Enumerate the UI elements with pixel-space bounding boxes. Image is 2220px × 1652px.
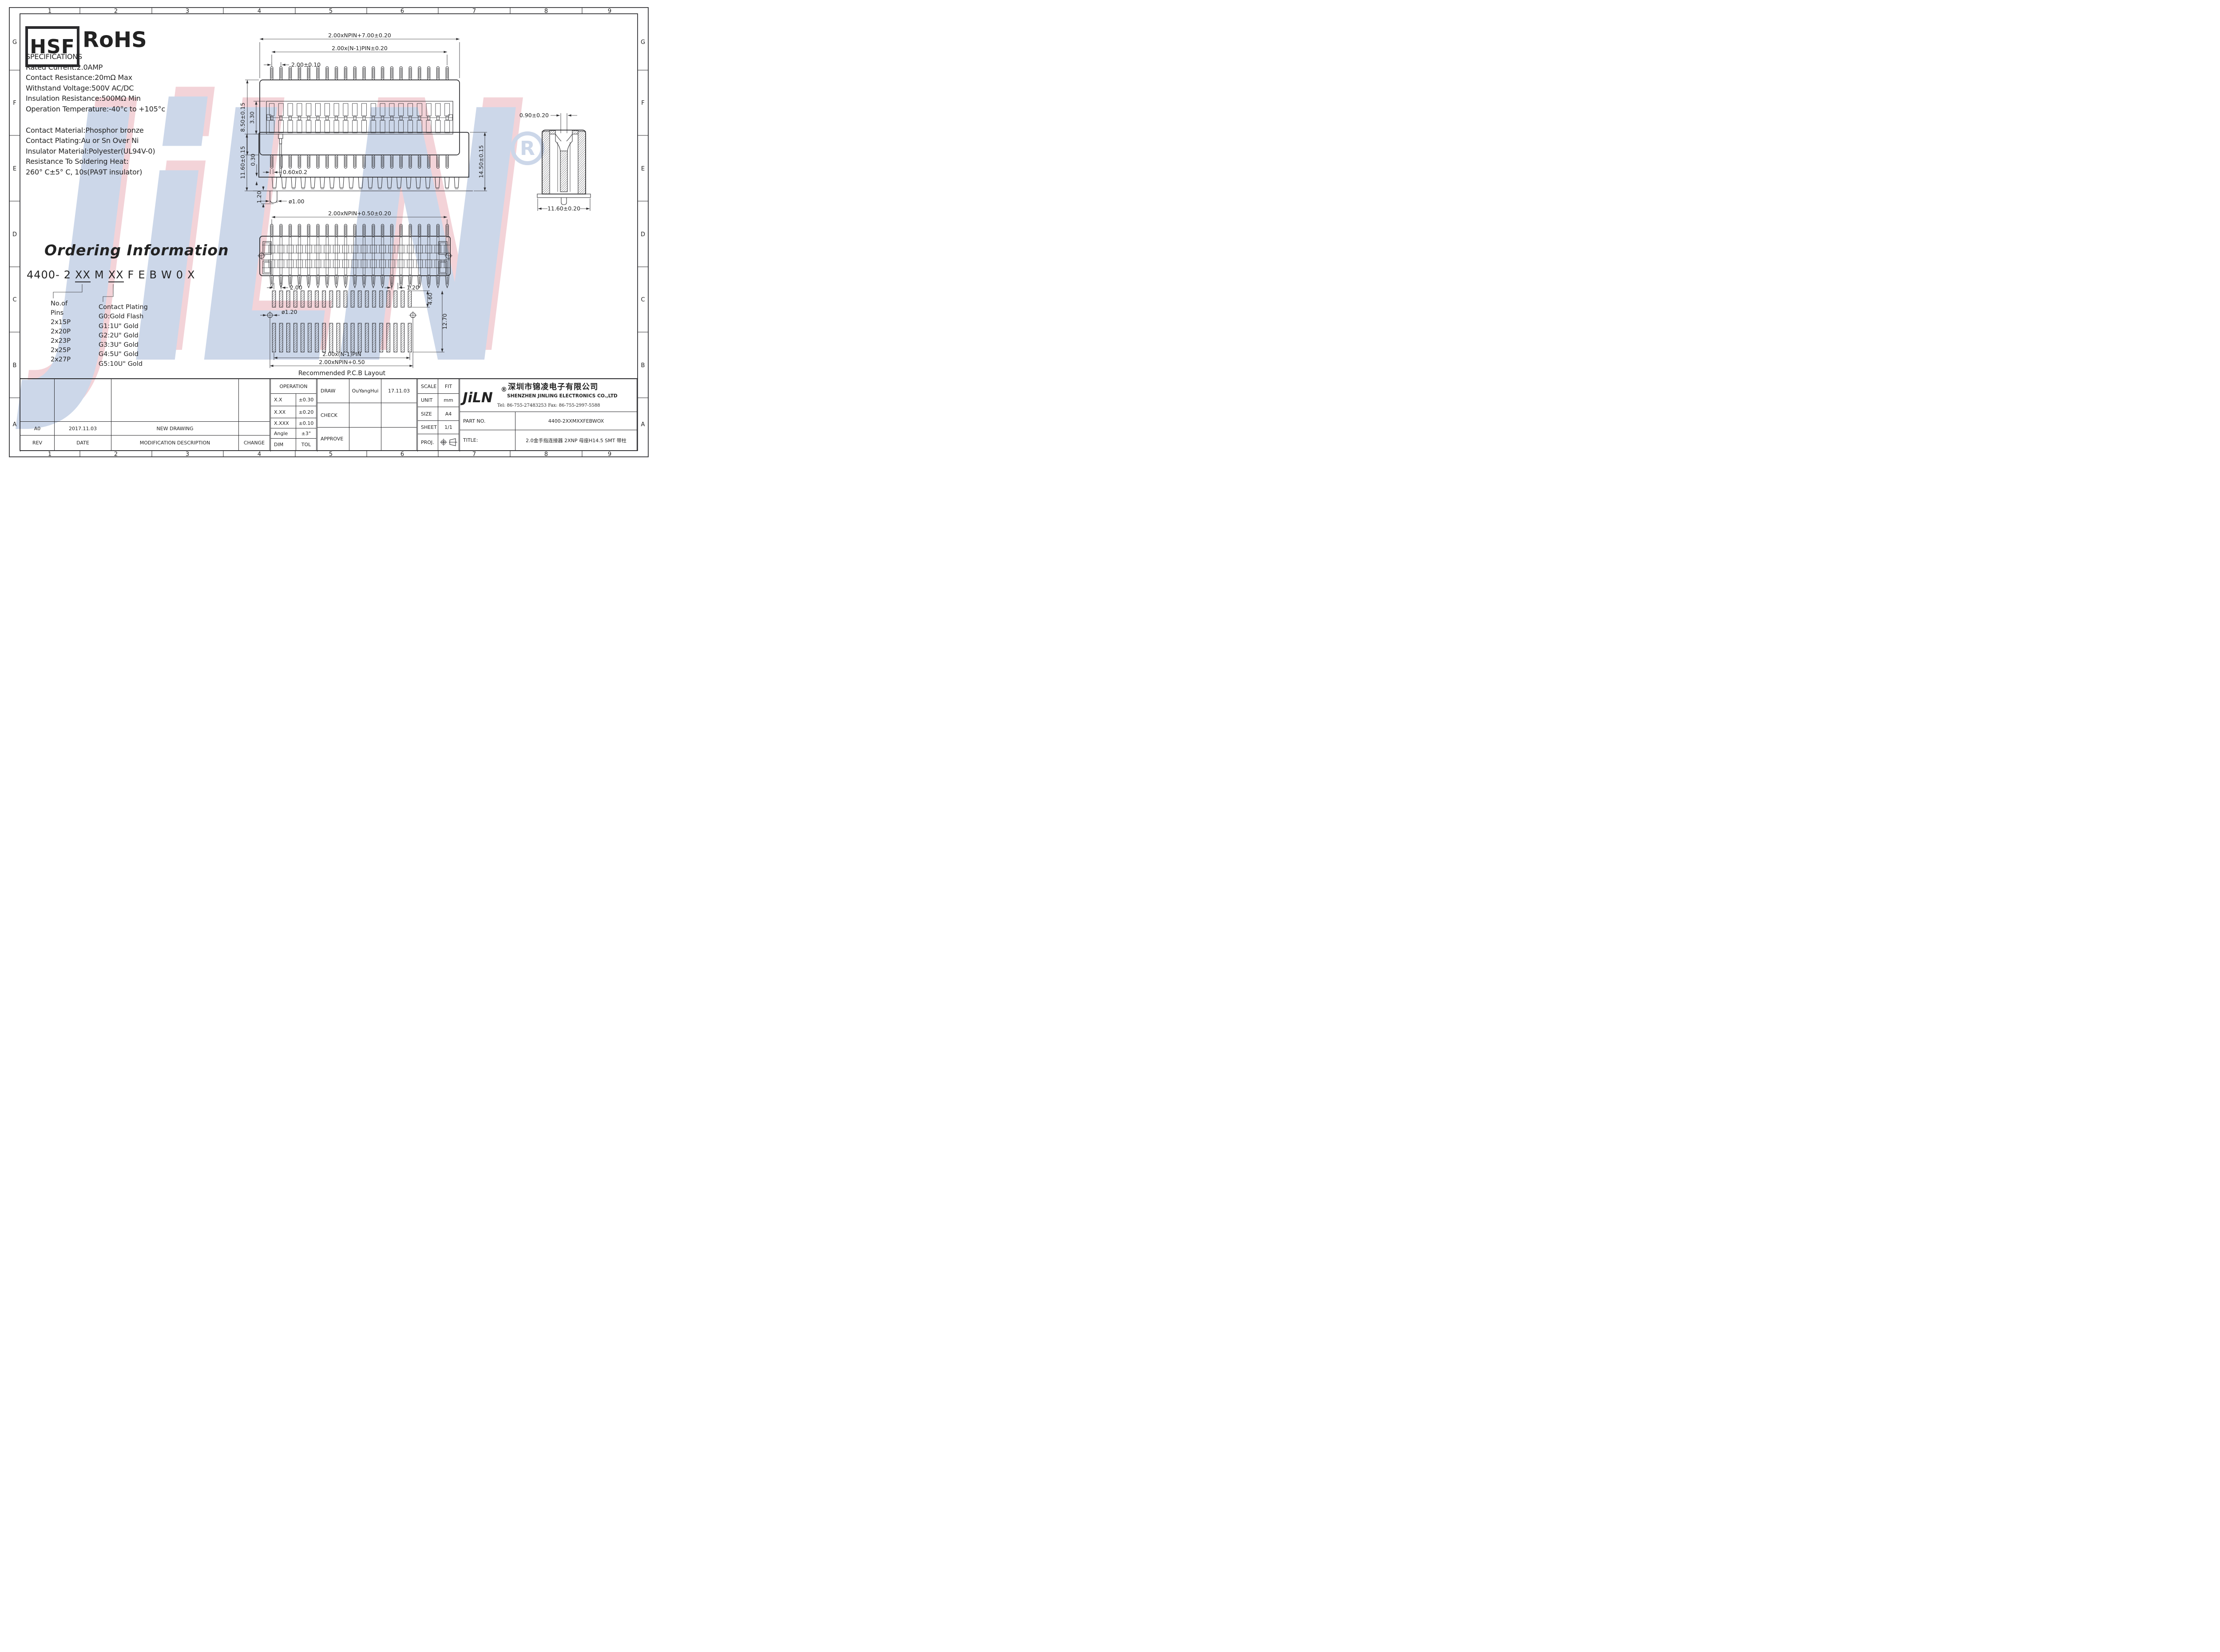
dim-top-pinwidth: 0.60x0.2 [283,169,307,175]
code-seg: 4400- [27,269,60,282]
rev-empty [239,379,270,422]
code-seg: 0 [176,269,183,282]
col-label: 6 [400,451,404,458]
spec-line: Operation Temperature:-40°c to +105°c [26,104,165,115]
row-label: F [641,100,644,107]
plating-option: G3:3U" Gold [99,341,148,350]
proj-label: PROJ. [418,434,438,451]
col-label: 7 [472,8,476,15]
dim-pcb-pitch: 2.00 [290,284,302,291]
tol-val: TOL [296,439,317,451]
col-label: 4 [258,8,261,15]
plating-option: G5:10U" Gold [99,360,148,369]
part-no-value: 4400-2XXMXXFEBWOX [515,412,637,430]
col-label: 6 [400,8,404,15]
rev-desc: NEW DRAWING [111,422,239,436]
dim-side-height: 11.60±0.15 [239,146,246,179]
col-label: 5 [329,8,333,15]
ordering-part-code: 4400- 2 XX M XX F E B W 0 X [27,269,195,282]
plating-option: G1:1U" Gold [99,322,148,331]
dim-top-slotband: 3.30 [249,111,255,124]
tolerance-header: OPERATION [271,379,317,394]
rev-date: 2017.11.03 [55,422,111,436]
registered-icon: ® [501,386,507,393]
col-label: 5 [329,451,333,458]
rev-header: CHANGE [239,436,270,451]
scale-label: SCALE [418,379,438,394]
tolerance-table: OPERATION X.X ±0.30 X.XX ±0.20 X.XXX ±0.… [270,378,317,452]
dim-pcb-holedia: ø1.20 [281,309,297,315]
dim-pcb-padlen: 4.60 [427,293,433,305]
tol-dim: X.XX [271,406,296,418]
row-label: A [641,421,645,428]
row-label: A [13,421,17,428]
tol-dim: X.XXX [271,418,296,428]
company-name-en: SHENZHEN JINLING ELECTRONICS CO.,LTD [507,393,618,399]
col-label: 3 [186,8,189,15]
spec-line: Insulation Resistance:500MΩ Min [26,93,165,104]
spec-line: Contact Material:Phosphor bronze [26,125,165,136]
dim-top-pitch: 2.00±0.10 [291,61,321,68]
plating-option: G0:Gold Flash [99,312,148,321]
spec-line: Contact Plating:Au or Sn Over Ni [26,135,165,146]
tol-dim: Angle [271,428,296,439]
row-label: E [13,166,16,172]
row-label: B [641,362,645,369]
tol-dim: X.X [271,394,296,406]
company-contact: Tel: 86-755-27483253 Fax: 86-755-2997-55… [497,403,600,408]
dim-pcb-padwidth: 1.20 [407,284,419,291]
title-label: TITLE: [460,430,515,451]
dim-side-postdia: ø1.00 [289,198,305,205]
col-label: 9 [608,8,611,15]
spec-line: Resistance To Soldering Heat: [26,156,165,167]
row-label: F [13,100,16,107]
col-label: 2 [114,8,118,15]
specifications-block: SPECIFICATIONS Rated Current:2.0AMP Cont… [26,52,165,178]
dim-pcb-overall: 2.00xNPIN+0.50 [319,359,365,365]
drawing-sheet: JiLN JiLN R 1 2 [0,0,657,465]
rev-header: DATE [55,436,111,451]
dim-top-height: 8.50±0.15 [239,103,246,132]
spec-line: Withstand Voltage:500V AC/DC [26,83,165,94]
col-label: 7 [472,451,476,458]
approve-name [349,428,381,451]
col-label: 3 [186,451,189,458]
row-label: E [641,166,645,172]
spec-line: Rated Current:2.0AMP [26,62,165,73]
col-label: 9 [608,451,611,458]
approve-label: APPROVE [317,428,349,451]
scale-value: FIT [438,379,459,394]
top-view: 2.00xNPIN+7.00±0.20 2.00x(N-1)PIN±0.20 2… [239,32,460,175]
check-label: CHECK [317,403,349,428]
company-name-cn: 深圳市锦凌电子有限公司 [508,381,599,392]
pcb-layout: 2.00 1.20 4.60 12.70 ø1.20 2.00x(N-1)PIN [260,283,448,377]
rev-header: REV [20,436,55,451]
rohs-badge: RoHS [83,28,147,52]
tol-val: ±0.20 [296,406,317,418]
title-value: 2.0金手指连接器 2XNP 母座H14.5 SMT 带柱 [515,430,637,451]
dim-side-postlen: 1.20 [256,191,262,203]
pcb-caption: Recommended P.C.B Layout [298,370,386,377]
company-header: JiLN ® 深圳市锦凌电子有限公司 SHENZHEN JINLING ELEC… [460,379,637,412]
ordering-title: Ordering Information [44,242,229,259]
plating-option: G2:2U" Gold [99,331,148,341]
pin-option: No.of [51,299,71,309]
plating-options: Contact Plating G0:Gold Flash G1:1U" Gol… [99,303,148,369]
rohs-label: RoHS [83,28,147,52]
spec-line: Contact Resistance:20mΩ Max [26,72,165,83]
spec-line: 260° C±5° C, 10s(PA9T insulator) [26,167,165,178]
rev-empty [111,379,239,422]
pin-option: 2x23P [51,337,71,346]
pin-option: Pins [51,309,71,318]
row-label: D [12,231,17,238]
code-seg: B [150,269,157,282]
revision-table: A0 2017.11.03 NEW DRAWING REV DATE MODIF… [20,378,271,452]
tol-val: ±0.10 [296,418,317,428]
unit-label: UNIT [418,394,438,407]
spec-line: Insulator Material:Polyester(UL94V-0) [26,146,165,157]
row-label: C [12,297,16,303]
row-label: G [12,39,17,46]
code-seg: 2 [64,269,71,282]
size-label: SIZE [418,407,438,421]
row-label: C [641,297,645,303]
row-label: G [641,39,645,46]
third-angle-icon [439,437,458,447]
tol-val: ±3° [296,428,317,439]
part-no-label: PART NO. [460,412,515,430]
plating-option: G4:5U" Gold [99,350,148,359]
col-label: 4 [258,451,261,458]
rev-change [239,422,270,436]
code-seg: M [95,269,104,282]
row-label: B [13,362,17,369]
title-block: JiLN ® 深圳市锦凌电子有限公司 SHENZHEN JINLING ELEC… [460,378,638,452]
rev-empty [55,379,111,422]
rev-empty [20,379,55,422]
front-view: 2.00xNPIN+0.50±0.20 [258,210,452,288]
row-label: D [641,231,645,238]
pin-option: 2x15P [51,318,71,327]
code-seg: E [138,269,145,282]
plating-option: Contact Plating [99,303,148,312]
code-seg-plating: XX [108,269,124,282]
dim-pcb-span: 2.00x(N-1)PIN [322,351,361,357]
draw-name: OuYangHui [349,379,381,403]
code-seg: X [187,269,195,282]
dim-detail-width: 11.60±0.20 [547,205,580,212]
company-logo: JiLN [463,390,493,406]
pin-option: 2x27P [51,355,71,364]
col-label: 1 [48,8,52,15]
code-seg-pins: XX [75,269,91,282]
dim-detail-gap: 0.90±0.20 [519,112,549,119]
tol-val: ±0.30 [296,394,317,406]
specs-title: SPECIFICATIONS [26,52,165,62]
approve-date [381,428,417,451]
dim-front-overall: 2.00xNPIN+0.50±0.20 [328,210,391,217]
dim-pcb-rowspan: 12.70 [441,313,448,329]
sheet-value: 1/1 [438,421,459,434]
dim-top-overall: 2.00xNPIN+7.00±0.20 [328,32,391,39]
code-seg: W [161,269,172,282]
tol-dim: DIM [271,439,296,451]
check-date [381,403,417,428]
side-view: 11.60±0.15 0.30 1.20 ø1.00 14.50±0.15 [239,132,487,208]
dim-top-span: 2.00x(N-1)PIN±0.20 [332,45,388,52]
dim-side-totalheight: 14.50±0.15 [478,145,484,178]
col-label: 8 [544,8,548,15]
pin-option: 2x20P [51,327,71,337]
sheet-label: SHEET [418,421,438,434]
info-table: SCALE FIT UNIT mm SIZE A4 SHEET 1/1 PROJ… [417,378,460,452]
detail-section-view: 0.90±0.20 11.60±0.20 [519,112,591,212]
rev-id: A0 [20,422,55,436]
pin-count-options: No.of Pins 2x15P 2x20P 2x23P 2x25P 2x27P [51,299,71,364]
pin-option: 2x25P [51,346,71,355]
col-label: 8 [544,451,548,458]
draw-label: DRAW [317,379,349,403]
code-seg: F [128,269,135,282]
col-label: 2 [114,451,118,458]
signoff-table: DRAW OuYangHui 17.11.03 CHECK APPROVE [317,378,418,452]
col-label: 1 [48,451,52,458]
rev-header: MODIFICATION DESCRIPTION [111,436,239,451]
draw-date: 17.11.03 [381,379,417,403]
check-name [349,403,381,428]
dim-side-standoff: 0.30 [250,154,256,166]
unit-value: mm [438,394,459,407]
projection-symbol [438,434,459,451]
size-value: A4 [438,407,459,421]
